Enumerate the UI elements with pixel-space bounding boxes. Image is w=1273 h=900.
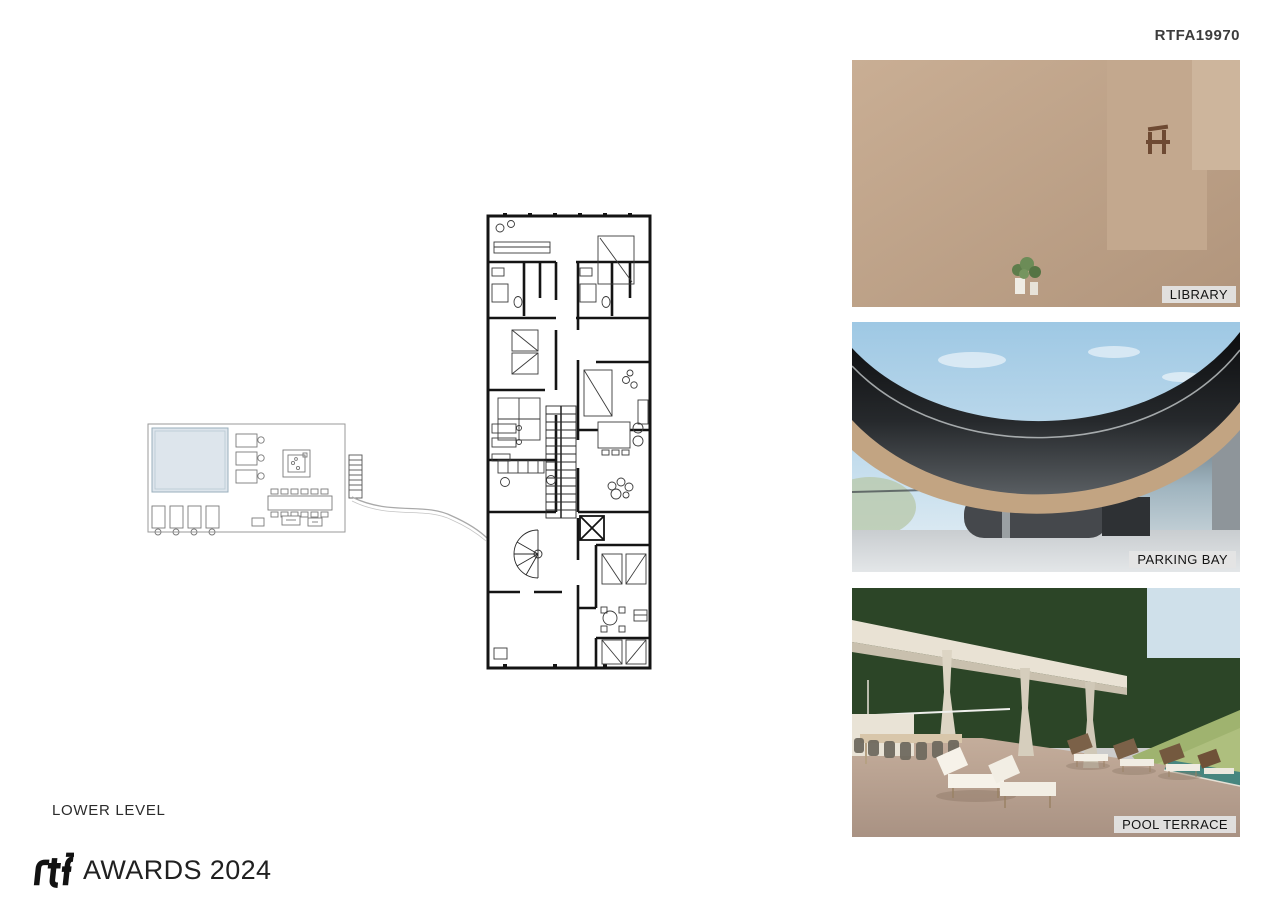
photo-label-parking-bay: PARKING BAY [1129,551,1236,568]
awards-text: AWARDS 2024 [83,855,271,886]
pool-terrace-photo: POOL TERRACE [852,588,1240,837]
pool-terrace-render [852,588,1240,837]
pool-terrace-plan [148,424,488,541]
parking-bay-photo: PARKING BAY [852,322,1240,572]
submission-code: RTFA19970 [1155,27,1240,44]
footer-logo: AWARDS 2024 [30,850,271,890]
library-render [852,60,1240,307]
terrace-stair [349,455,362,498]
site-plan [0,0,852,900]
photo-label-pool-terrace: POOL TERRACE [1114,816,1236,833]
level-label: LOWER LEVEL [52,802,166,819]
photo-label-library: LIBRARY [1162,286,1236,303]
garden-path [352,497,488,539]
house-plan [488,213,650,668]
rtf-logo-icon [30,850,74,890]
pool [152,428,228,492]
library-photo: LIBRARY [852,60,1240,307]
parking-bay-render [852,322,1240,572]
presentation-board: RTFA19970 [0,0,1273,900]
